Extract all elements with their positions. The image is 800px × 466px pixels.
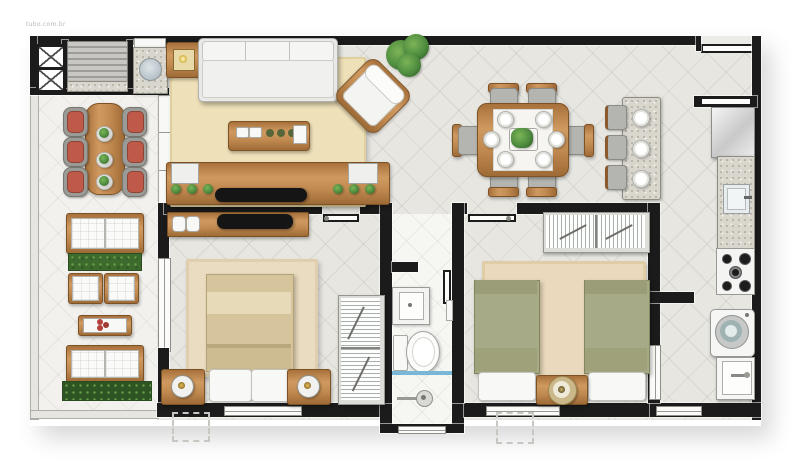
- bed2R-fold: [585, 348, 647, 371]
- refrigerator: [711, 107, 755, 158]
- kitchen-door: [700, 97, 752, 106]
- bedroom1-bottom-window: [224, 406, 302, 416]
- loveseat-cushion-2: [105, 350, 139, 378]
- sink-faucet: [744, 196, 752, 199]
- wall-bathroom-top: [392, 262, 418, 272]
- burner-1: [722, 254, 732, 264]
- chair-cushion: [127, 171, 144, 193]
- console-plant-2: [187, 184, 197, 194]
- magazine: [293, 125, 307, 144]
- bedroom1-tv: [217, 214, 293, 229]
- kitchen-sink-basin: [727, 188, 746, 210]
- console-speaker-right: [348, 163, 378, 184]
- living-tv: [215, 188, 307, 202]
- balcony-chair-2: [63, 137, 88, 167]
- laundry-window: [656, 406, 702, 416]
- shower-head-center: [421, 395, 426, 400]
- dresser-knob-1: [172, 216, 186, 232]
- buffet-plate-2: [632, 140, 650, 158]
- chair-cushion: [127, 141, 144, 163]
- balcony-chair-6: [122, 167, 147, 197]
- shaft-window: [649, 345, 661, 400]
- chair-cushion: [67, 171, 84, 193]
- buffet-plate-1: [632, 109, 650, 127]
- balcony-rail-left: [30, 90, 39, 420]
- sofa-back: [202, 41, 334, 62]
- hatch-unit-2: [36, 67, 66, 93]
- toilet-seat: [412, 337, 435, 367]
- bed1-pillow-1: [209, 369, 252, 402]
- lamp-bedroom2-center: [558, 386, 565, 393]
- balcony-table-plant-3: [99, 176, 109, 186]
- balcony-table-plant-1: [99, 128, 109, 138]
- coffee-table-box-1: [236, 127, 249, 138]
- lamp-glow: [179, 55, 187, 63]
- bench-cushion-2: [105, 218, 139, 249]
- centerpiece-plant: [511, 128, 533, 148]
- place-setting-4: [535, 151, 552, 168]
- wall-corridor-right: [452, 203, 464, 403]
- place-setting-3: [497, 151, 514, 168]
- wardrobe2-divider: [595, 215, 597, 248]
- chair-cushion: [67, 141, 84, 163]
- burner-4: [739, 280, 751, 292]
- hedge: [62, 381, 152, 401]
- bed1-stripe: [207, 292, 291, 314]
- bathroom-door: [443, 270, 451, 304]
- bench-cushion-1: [71, 218, 105, 249]
- bathroom-window: [398, 426, 446, 434]
- lamp-right-center: [304, 382, 311, 389]
- loveseat-cushion-1: [71, 350, 105, 378]
- balcony-chair-5: [122, 137, 147, 167]
- fern-plant-3: [397, 53, 421, 77]
- place-setting-2: [535, 111, 552, 128]
- bed2L-pillow: [478, 372, 536, 401]
- dresser-knob-2: [186, 216, 200, 232]
- bed1-foot-band: [207, 348, 291, 369]
- bed2R-pillow: [588, 372, 646, 401]
- place-setting-1: [497, 111, 514, 128]
- console-speaker-left: [171, 163, 199, 184]
- buffet-plate-3: [632, 170, 650, 188]
- floor-plan: tubo.com.br: [0, 0, 800, 466]
- bed2R-head-band: [585, 280, 647, 294]
- grill-counter-edge: [67, 81, 128, 92]
- vanity-drain: [408, 303, 412, 307]
- dchair-right-rail: [584, 124, 594, 157]
- balcony-table-plant-2: [99, 154, 109, 164]
- projection-dash-1: [172, 412, 210, 442]
- dchair-bot1-rail: [488, 187, 519, 197]
- place-setting-6: [548, 131, 565, 148]
- dchair-bot2-rail: [526, 187, 557, 197]
- coffee-table-box-2: [249, 127, 262, 138]
- balcony-rail-bottom: [30, 410, 159, 419]
- console-plant-6: [365, 184, 375, 194]
- projection-dash-2: [496, 412, 534, 444]
- console-plant-1: [171, 184, 181, 194]
- console-plant-4: [333, 184, 343, 194]
- wardrobe1-divider: [341, 347, 380, 349]
- stool-3: [605, 165, 627, 190]
- tank-basin: [722, 361, 752, 395]
- chair-cushion: [127, 111, 144, 133]
- balcony-chair-1: [63, 107, 88, 137]
- balcony-chair-3: [63, 167, 88, 197]
- console-plant-5: [349, 184, 359, 194]
- flower-3: [97, 325, 103, 331]
- entry-door: [701, 44, 755, 53]
- chair-cushion: [67, 111, 84, 133]
- burner-2: [739, 253, 751, 265]
- stool-2: [605, 135, 627, 160]
- armchair-cushion: [72, 276, 99, 301]
- console-plant-3: [203, 184, 213, 194]
- bedroom1-window: [158, 258, 171, 352]
- bedroom1-door-handle: [324, 216, 329, 221]
- planter: [68, 253, 142, 271]
- flower-2: [103, 322, 109, 328]
- balcony-chair-4: [122, 107, 147, 137]
- place-setting-5: [483, 131, 500, 148]
- burner-center: [729, 266, 742, 279]
- round-sink: [139, 58, 162, 81]
- wall-laundry-stub: [650, 292, 694, 303]
- tank-faucet-head: [744, 372, 750, 378]
- lamp-left-center: [178, 382, 185, 389]
- entry-door-frame: [696, 36, 701, 51]
- washer-drum-center: [725, 325, 737, 337]
- bed2L-head-band: [475, 280, 537, 294]
- barbecue-grill: [67, 41, 128, 84]
- armchair-cushion: [108, 276, 135, 301]
- washer-knob: [745, 313, 749, 317]
- bowl-1: [266, 129, 274, 137]
- bedroom2-door-handle: [506, 216, 511, 221]
- stool-1: [605, 105, 627, 130]
- shower-glass: [392, 371, 452, 375]
- watermark-text: tubo.com.br: [26, 21, 66, 28]
- bowl-2: [277, 129, 285, 137]
- burner-3: [722, 281, 732, 291]
- sofa-seat: [202, 60, 334, 98]
- bed2L-fold: [475, 348, 537, 371]
- towel-rail: [446, 300, 453, 321]
